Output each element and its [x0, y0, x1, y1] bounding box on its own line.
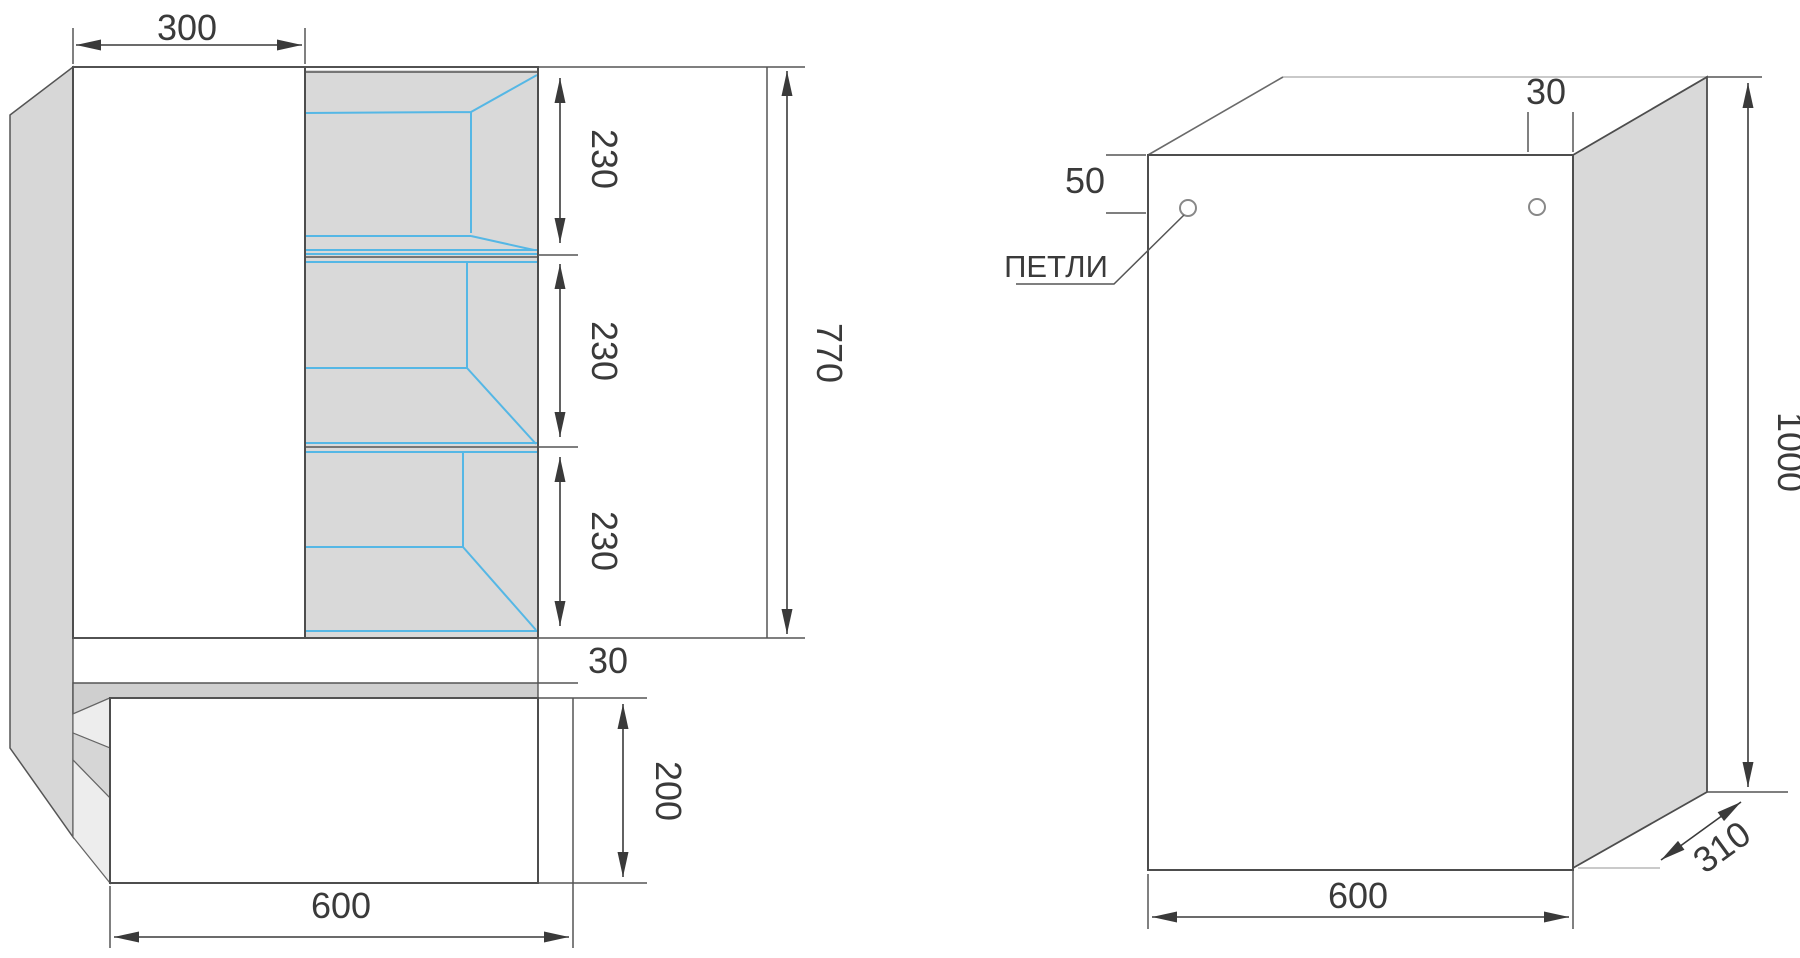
left-side-panel	[10, 67, 73, 837]
dim-label-base-width: 600	[311, 885, 371, 926]
dim-label-drawer-height: 200	[648, 761, 689, 821]
cabinet-door	[73, 67, 305, 638]
right-side-panel	[1573, 77, 1707, 868]
technical-drawing-canvas: 300 230 230 230 770 30 200 600	[0, 0, 1800, 958]
dim-label-counter-gap: 30	[588, 640, 628, 681]
dim-label-upper-height: 770	[809, 323, 850, 383]
dim-label-shelf-3: 230	[584, 511, 625, 571]
shelf-column	[305, 70, 538, 638]
dim-label-depth-310: 310	[1685, 813, 1758, 881]
dim-label-hinge-side-offset: 30	[1526, 71, 1566, 112]
dim-label-width-600: 600	[1328, 875, 1388, 916]
hinge-hole-left	[1180, 200, 1196, 216]
front-view: 300 230 230 230 770 30 200 600	[10, 7, 850, 948]
dim-label-height-1000: 1000	[1770, 412, 1800, 492]
dim-label-shelf-2: 230	[584, 321, 625, 381]
dim-label-hinge-top-offset: 50	[1065, 160, 1105, 201]
dim-label-shelf-1: 230	[584, 129, 625, 189]
dim-label-door-width: 300	[157, 7, 217, 48]
hinge-hole-right	[1529, 199, 1545, 215]
front-panel	[1148, 155, 1573, 870]
side-view: 50 30 ПЕТЛИ 1000 310 600	[1004, 71, 1800, 929]
drawer-front	[110, 698, 538, 883]
hinges-label: ПЕТЛИ	[1004, 249, 1108, 284]
